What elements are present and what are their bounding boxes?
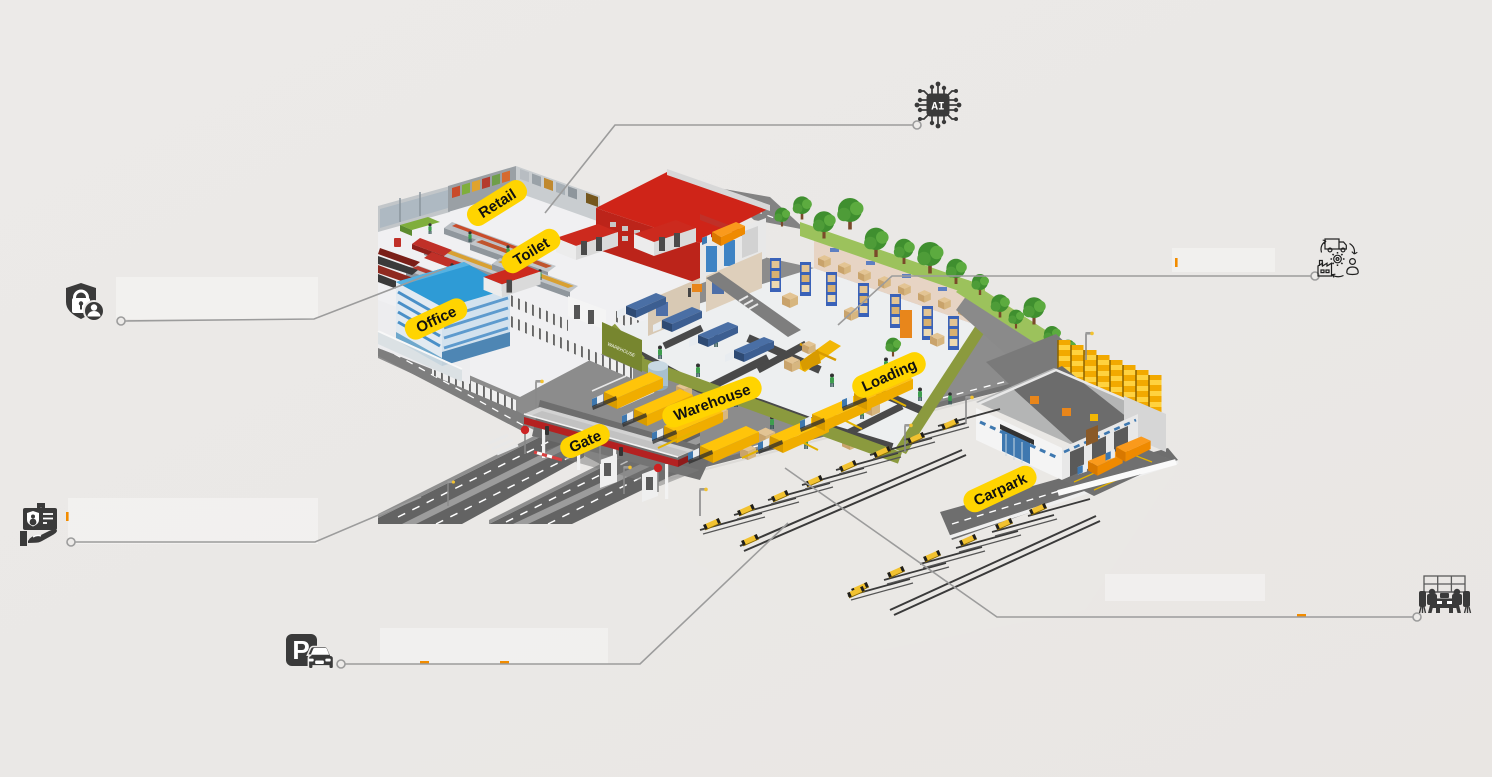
svg-text:AI: AI <box>931 102 944 114</box>
svg-text:P: P <box>292 635 309 665</box>
